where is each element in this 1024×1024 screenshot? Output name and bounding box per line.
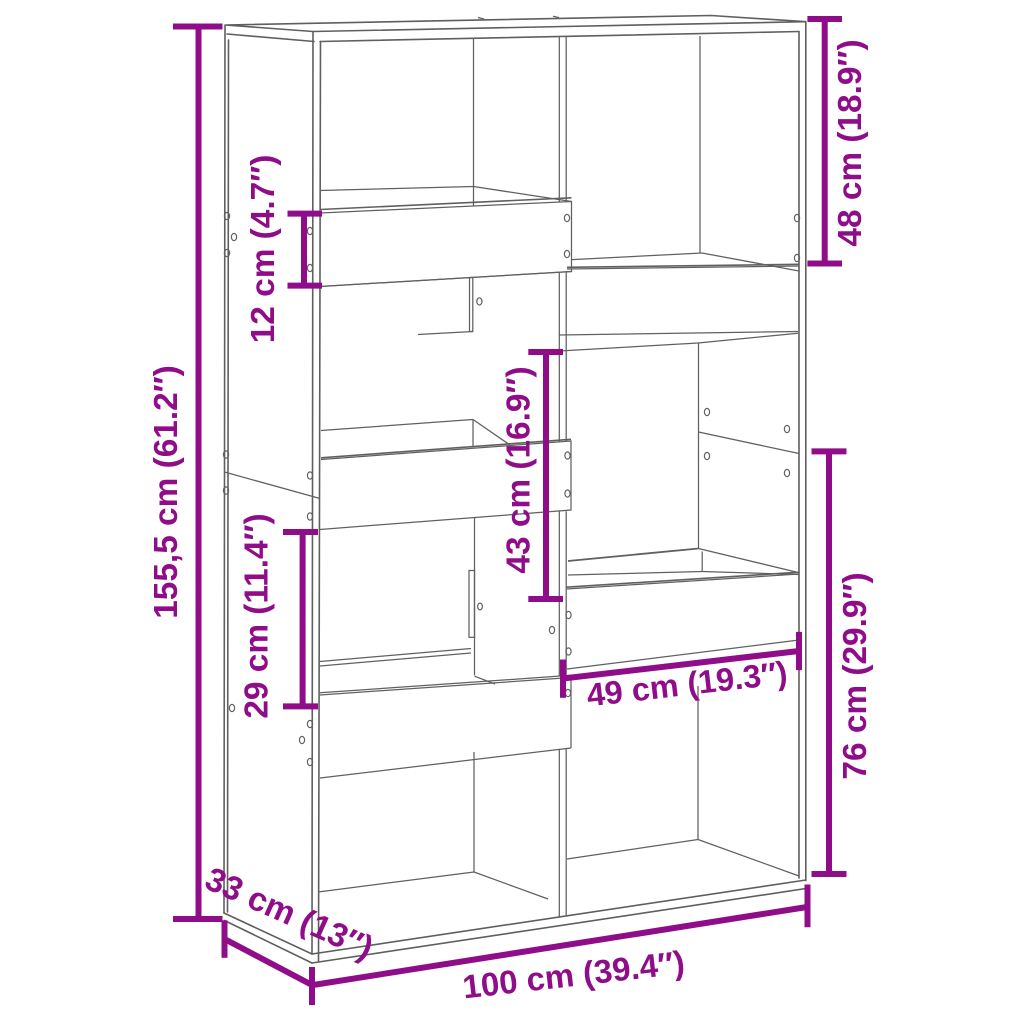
svg-text:76 cm (29.9″): 76 cm (29.9″) xyxy=(837,572,874,779)
svg-text:48 cm (18.9″): 48 cm (18.9″) xyxy=(832,39,869,246)
svg-text:43 cm (16.9″): 43 cm (16.9″) xyxy=(501,366,538,573)
svg-text:155,5 cm (61.2″): 155,5 cm (61.2″) xyxy=(148,365,185,619)
svg-text:12 cm (4.7″): 12 cm (4.7″) xyxy=(245,155,282,344)
svg-text:29 cm (11.4″): 29 cm (11.4″) xyxy=(239,513,276,718)
